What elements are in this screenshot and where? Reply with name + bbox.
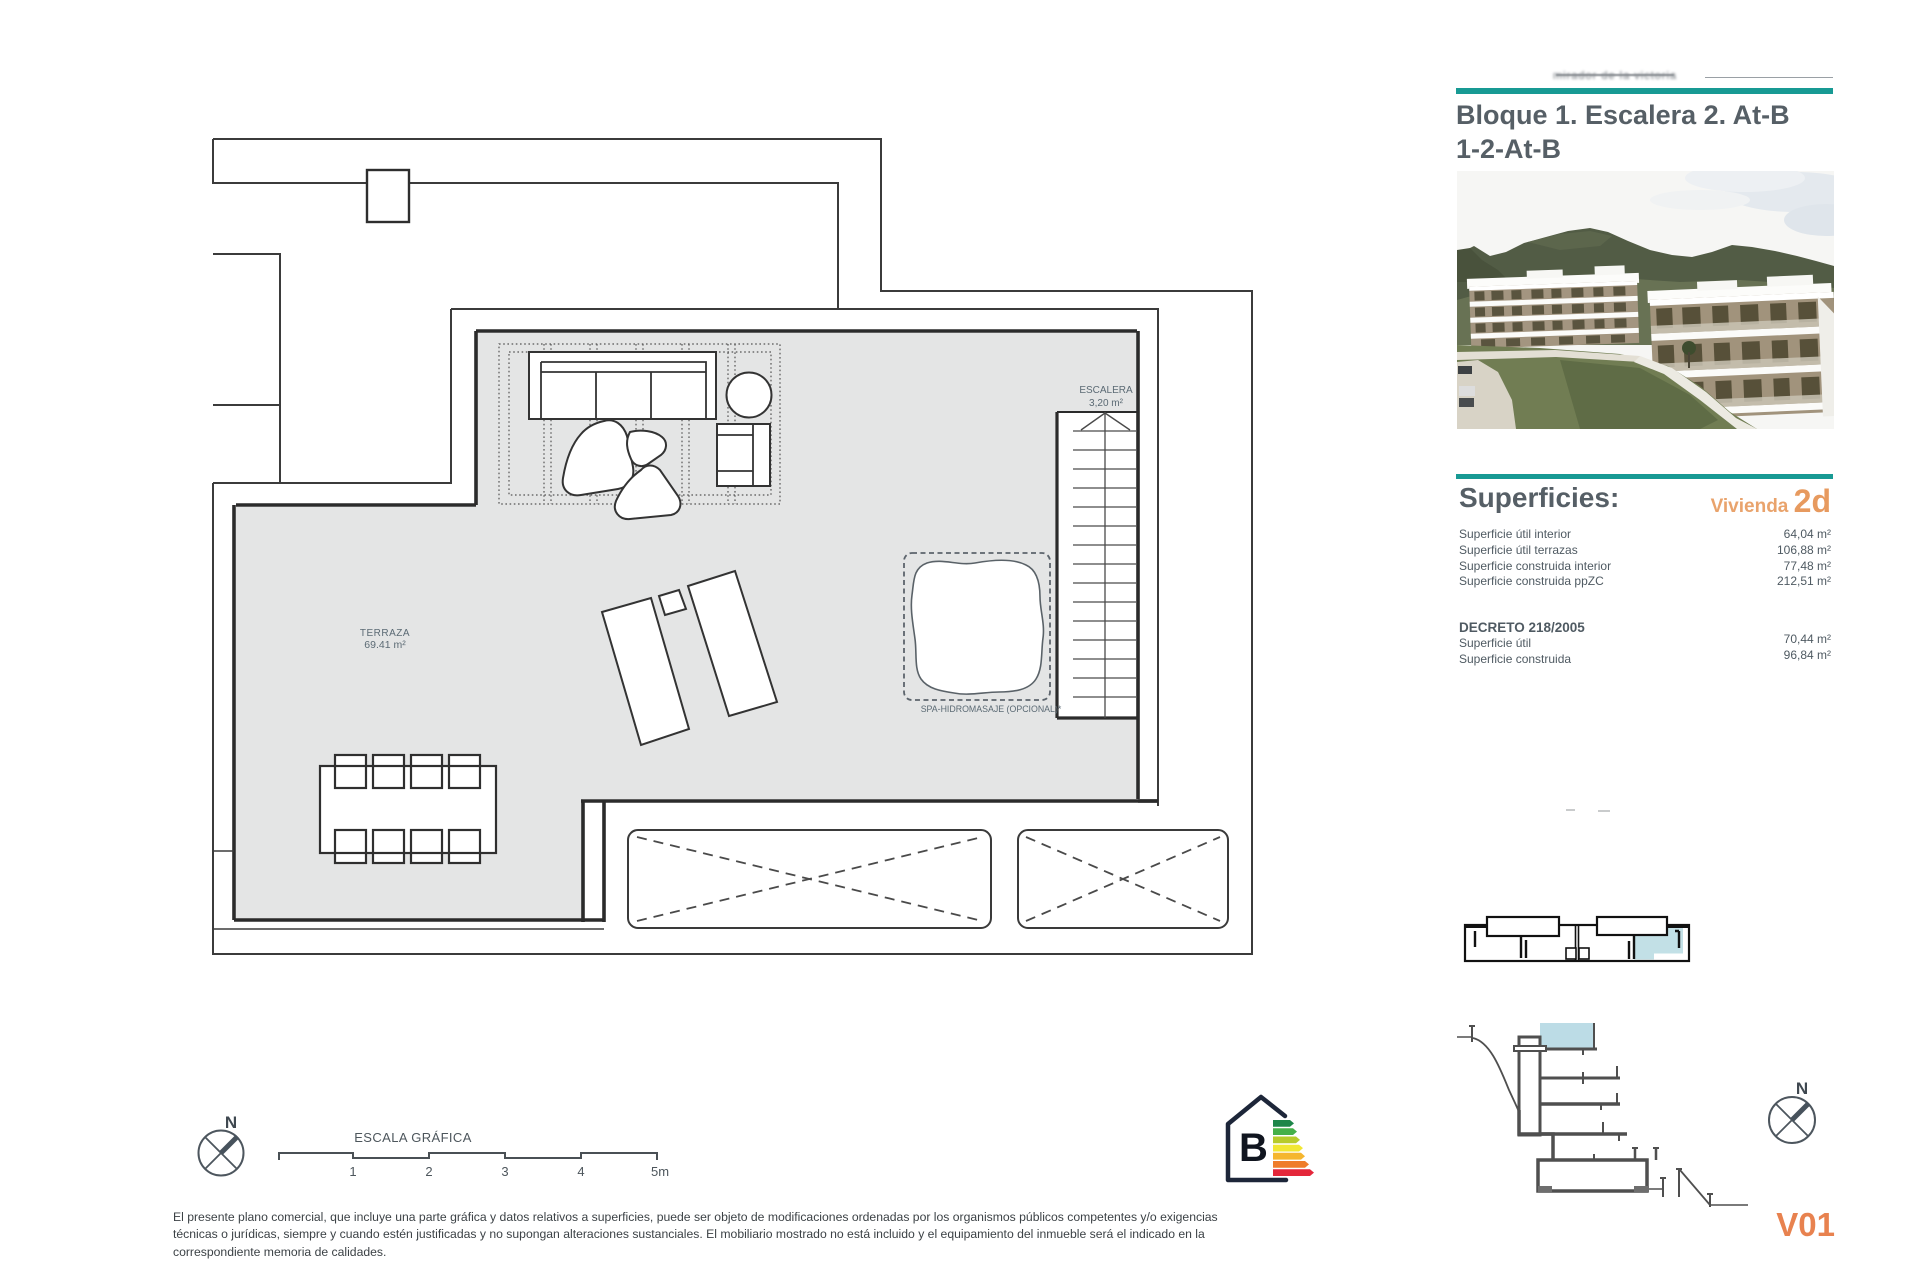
svg-text:5m: 5m (651, 1164, 669, 1179)
svg-text:TERRAZA: TERRAZA (360, 628, 410, 639)
svg-text:4: 4 (577, 1164, 584, 1179)
svg-text:ESCALA GRÁFICA: ESCALA GRÁFICA (354, 1130, 472, 1145)
svg-text:N: N (1796, 1079, 1808, 1098)
svg-text:B: B (1239, 1126, 1268, 1170)
svg-text:2: 2 (425, 1164, 432, 1179)
svg-text:3,20 m²: 3,20 m² (1089, 398, 1124, 409)
svg-text:N: N (225, 1113, 237, 1132)
svg-text:ESCALERA: ESCALERA (1079, 385, 1133, 396)
svg-text:1: 1 (349, 1164, 356, 1179)
svg-text:3: 3 (501, 1164, 508, 1179)
svg-text:SPA-HIDROMASAJE (OPCIONAL)*: SPA-HIDROMASAJE (OPCIONAL)* (921, 704, 1062, 714)
svg-text:69.41 m²: 69.41 m² (364, 639, 406, 651)
